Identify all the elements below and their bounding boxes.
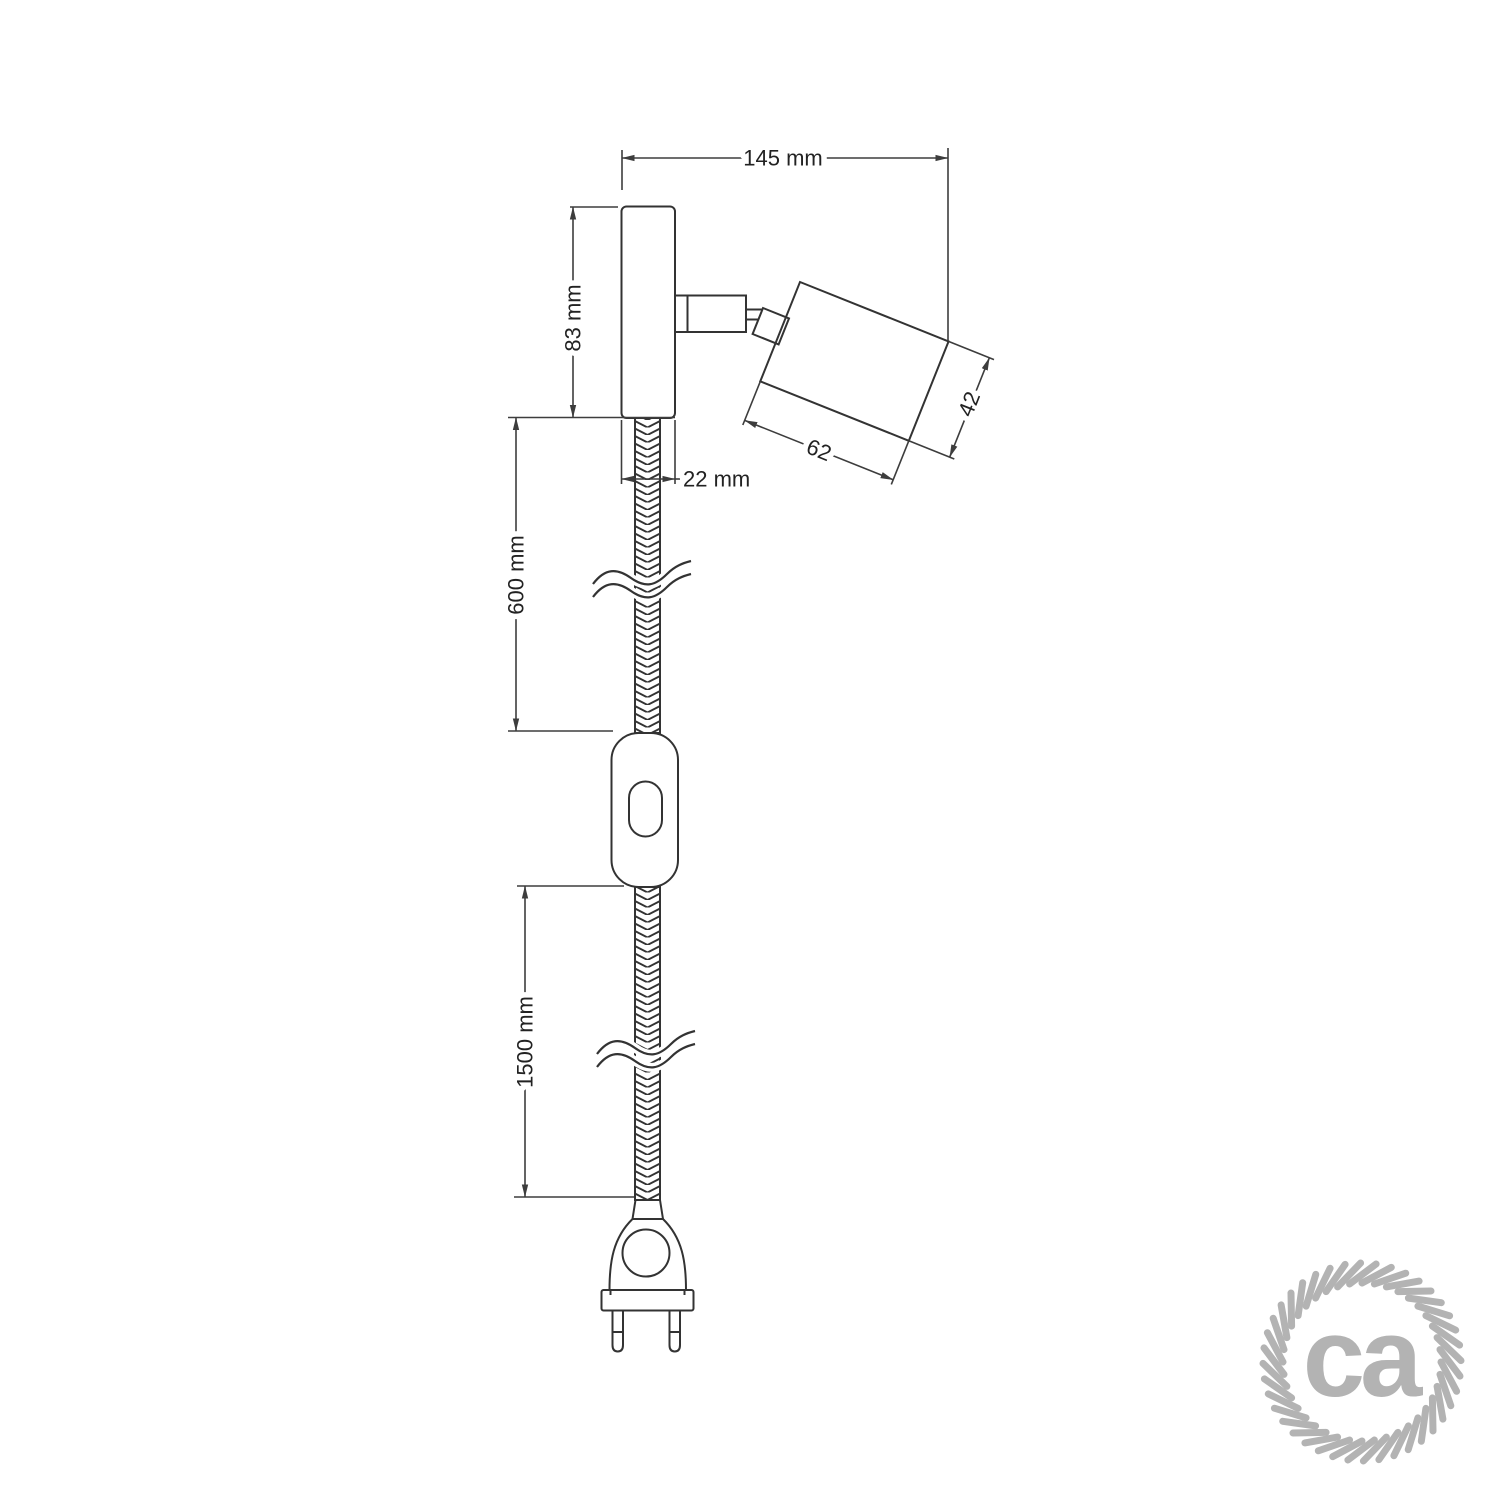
plug-neck — [633, 1200, 664, 1219]
cable-braid-lower — [635, 887, 660, 1200]
plug-hole — [623, 1230, 670, 1277]
inline-switch — [612, 733, 679, 887]
label-upper-cable: 600 mm — [504, 535, 529, 614]
dimension-total-width — [622, 148, 948, 341]
label-plate-height: 83 mm — [561, 284, 586, 351]
braided-cable-lower — [597, 887, 695, 1200]
arm-body — [675, 296, 746, 333]
lamp-outline — [593, 207, 949, 1352]
label-total-width: 145 mm — [743, 146, 822, 171]
braided-cable-upper — [593, 418, 691, 733]
plug-prong-right — [670, 1311, 681, 1352]
technical-drawing-page: 145 mm 83 mm 22 mm 600 mm 1500 mm 62 42 … — [0, 0, 1500, 1500]
dimension-spot-length — [743, 381, 909, 484]
brand-logo: ca — [1263, 1263, 1461, 1461]
label-spot-length: 62 — [803, 434, 835, 466]
wall-spotlight-dimension-diagram: 145 mm 83 mm 22 mm 600 mm 1500 mm 62 42 … — [0, 0, 1500, 1500]
wall-plate — [622, 207, 676, 419]
euro-plug — [602, 1200, 694, 1352]
swivel-knuckle — [753, 308, 789, 344]
switch-body — [612, 733, 679, 887]
spot-body — [760, 282, 948, 441]
spotlight-cylinder — [760, 282, 948, 441]
swivel-arm — [675, 296, 789, 345]
plug-base-flange — [602, 1290, 694, 1311]
brand-logo-text: ca — [1303, 1295, 1423, 1420]
label-lower-cable: 1500 mm — [513, 996, 538, 1088]
label-spot-diameter: 42 — [953, 388, 985, 420]
dimension-labels: 145 mm 83 mm 22 mm 600 mm 1500 mm 62 42 — [504, 146, 986, 1088]
label-plate-depth: 22 mm — [683, 467, 750, 492]
cable-braid-upper — [635, 418, 660, 733]
plug-prong-left — [613, 1311, 624, 1352]
